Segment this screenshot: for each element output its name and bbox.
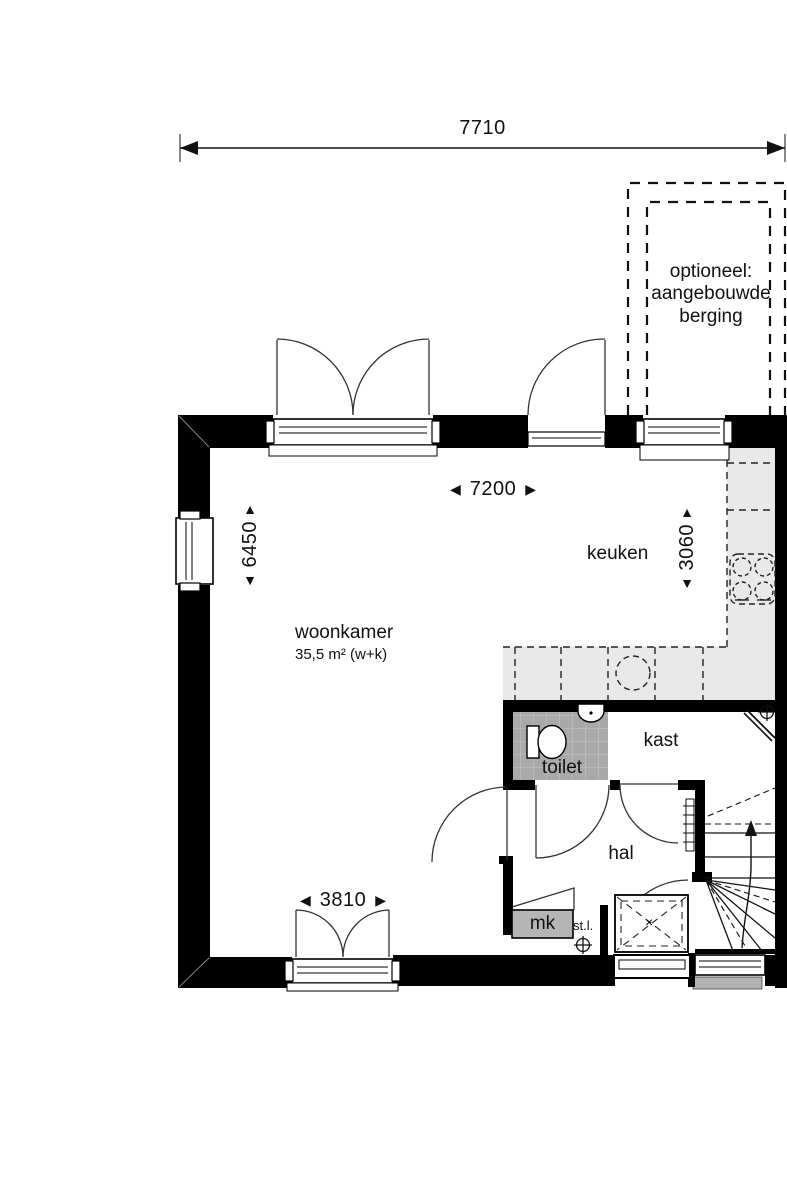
room-label-kitchen: keuken [587, 544, 648, 565]
arrow-right-icon: ▶ [525, 482, 536, 496]
staircase [705, 788, 775, 951]
arrow-right-icon [767, 141, 785, 155]
room-label-meter-cupboard: mk [512, 910, 573, 938]
meter-cupboard-door-leaf [512, 888, 574, 910]
stair-window [695, 955, 765, 975]
riser-symbol-icon [574, 936, 592, 954]
dimension-rear-doors-width: ◀ 3810 ▶ [280, 889, 406, 911]
front-french-doors [285, 910, 400, 991]
duct-corner-hatch [744, 710, 775, 741]
kitchen-window [636, 419, 732, 460]
stair-direction-arrow-icon [745, 820, 757, 836]
arrow-up-icon: ▲ [680, 505, 694, 519]
room-area-living: 35,5 m² (w+k) [295, 647, 387, 664]
entrance-step [693, 977, 762, 989]
room-label-optional-storage: optioneel: aangebouwde berging [631, 261, 787, 328]
arrow-down-icon: ▼ [243, 573, 257, 587]
closet-door-swing [620, 785, 678, 843]
living-room-window [176, 511, 213, 591]
dimension-living-depth: ▲ 6450 ▼ [230, 502, 270, 587]
arrow-down-icon: ▼ [680, 576, 694, 590]
floor-plan-drawing [0, 0, 787, 1193]
room-label-closet: kast [630, 731, 692, 752]
room-label-hall: hal [599, 844, 643, 865]
room-label-riser-duct: st.l. [573, 919, 593, 933]
rear-single-door [528, 339, 605, 446]
room-label-living: woonkamer [295, 623, 393, 644]
floor-plan-canvas: 7710 ◀ 7200 ▶ ◀ 3810 ▶ ▲ 6450 ▼ ▲ 3060 ▼… [0, 0, 787, 1193]
arrow-up-icon: ▲ [243, 502, 257, 516]
walls [178, 415, 787, 988]
arrow-left-icon: ◀ [450, 482, 461, 496]
arrow-right-icon: ▶ [375, 893, 386, 907]
arrow-left-icon: ◀ [300, 893, 311, 907]
rear-french-doors [266, 339, 440, 456]
dimension-kitchen-depth: ▲ 3060 ▼ [667, 505, 707, 590]
crawl-hatch-mark: × [645, 915, 653, 930]
arrow-left-icon [180, 141, 198, 155]
radiator-icon [683, 799, 697, 851]
wc-bowl-icon [538, 726, 566, 759]
wc-cistern-icon [527, 726, 539, 758]
dimension-interior-width: ◀ 7200 ▶ [420, 478, 566, 500]
room-label-toilet: toilet [527, 758, 597, 779]
dimension-overall-width: 7710 [180, 117, 785, 139]
living-door-swing [432, 787, 507, 862]
